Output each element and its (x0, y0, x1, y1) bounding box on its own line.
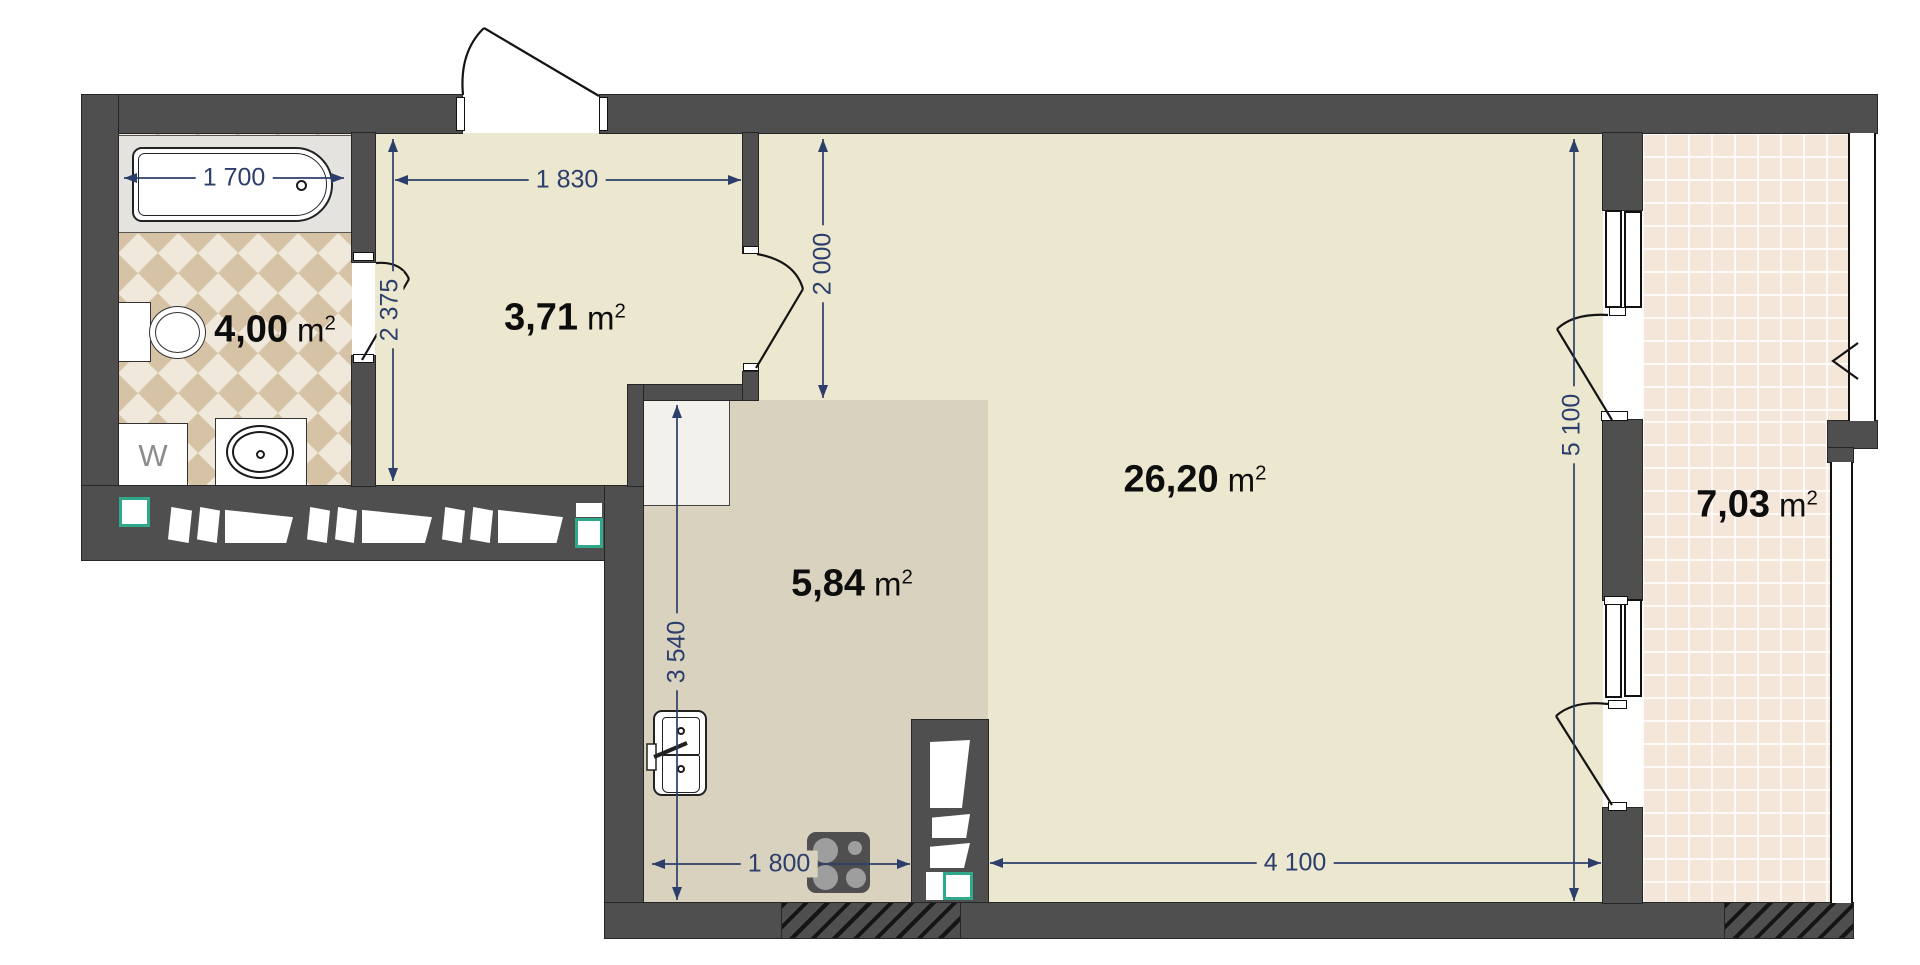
room-area-unit: m2 (1228, 462, 1267, 499)
vent-slat-icon (930, 843, 970, 868)
floor-plan: W (0, 0, 1920, 965)
vent-slat-icon (168, 507, 192, 543)
bathroom-door-jamb (353, 354, 374, 363)
entrance-door-jamb (599, 97, 608, 131)
balcony-door-jamb (1608, 700, 1627, 709)
washing-machine-label: W (119, 424, 187, 487)
toilet-bowl (149, 306, 206, 359)
dimension-label-living-width: 4 100 (1257, 850, 1334, 877)
wall-balcony-bracket-lower (1828, 448, 1853, 462)
dimension-label-bathtub: 1 700 (196, 165, 273, 192)
vent-white-box (576, 503, 602, 517)
vent-slat-icon (197, 507, 220, 543)
vent-slat-icon (442, 507, 465, 543)
vent-marker-icon (943, 872, 973, 900)
dimension-label-living-depth: 5 100 (1559, 387, 1586, 464)
wall-hallway-kitchen (628, 385, 758, 400)
wall-hallway-right-upper (743, 133, 758, 253)
room-area-label-kitchen: 5,84m2 (791, 563, 913, 606)
room-area-label-living: 26,20m2 (1124, 459, 1267, 502)
vent-slat-icon (307, 507, 330, 543)
wall-bathroom-right-upper (352, 133, 375, 262)
kitchen-sink-drain-top-icon (677, 727, 685, 735)
kitchen-sink (653, 710, 707, 796)
entrance-door-arc (462, 28, 484, 95)
vent-marker-icon (119, 497, 150, 527)
wall-hallway-right-lower (743, 372, 758, 400)
entrance-door-leaf (484, 28, 599, 96)
room-area-value: 5,84 (791, 563, 865, 605)
dimension-label-hallway-width: 1 830 (529, 167, 606, 194)
vent-white-box (926, 872, 943, 900)
stove-burner-icon (846, 868, 866, 888)
window-pane (1624, 211, 1642, 308)
bathroom-sink-drain-icon (256, 450, 265, 459)
hallway-floor-lower (375, 400, 628, 486)
bathroom-sink (215, 418, 307, 488)
toilet-bowl-inner (155, 312, 200, 353)
wall-pier-top (1603, 133, 1642, 210)
kitchen-sink-basin-bottom (662, 755, 700, 793)
wall-balcony-bracket (1828, 421, 1877, 448)
room-area-unit: m2 (874, 566, 913, 603)
wall-kitchen-left (605, 486, 643, 938)
entrance-door-jamb (456, 97, 465, 131)
fridge (643, 400, 730, 506)
room-area-label-bathroom: 4,00m2 (214, 309, 336, 352)
wall-pier-bottom (1603, 808, 1642, 903)
dimension-label-living-entry: 2 000 (810, 226, 837, 303)
balcony-door-jamb (1609, 307, 1626, 316)
room-area-label-hallway: 3,71m2 (504, 297, 626, 340)
vent-slat-icon (335, 507, 357, 543)
window-pane (1624, 599, 1642, 697)
room-area-value: 3,71 (504, 297, 578, 339)
room-area-value: 7,03 (1696, 484, 1770, 526)
wall-kitchen-left-upper (628, 385, 643, 486)
room-area-unit: m2 (587, 300, 626, 337)
balcony-door-jamb (1608, 802, 1627, 811)
wall-pier-middle (1603, 420, 1642, 600)
bathroom-door-jamb (353, 252, 374, 261)
room-area-value: 26,20 (1124, 459, 1219, 501)
toilet-tank (117, 302, 151, 362)
room-area-value: 4,00 (214, 309, 288, 351)
hallway-door-jamb (743, 363, 759, 371)
washing-machine: W (118, 423, 188, 488)
wall-bathroom-right-lower (352, 356, 375, 486)
window-pane (1605, 210, 1622, 308)
vent-slat-icon (932, 814, 970, 838)
dimension-label-hallway-depth: 2 375 (377, 272, 404, 349)
dimension-label-kitchen-width: 1 800 (741, 851, 818, 878)
balcony-floor-upper (1642, 133, 1848, 421)
kitchen-sink-drain-bottom-icon (677, 765, 685, 773)
room-area-unit: m2 (1779, 487, 1818, 524)
room-area-unit: m2 (297, 312, 336, 349)
kitchen-sink-basin-top (662, 717, 700, 755)
wall-bottom-hatch-balcony (1725, 903, 1853, 938)
wall-top-right (600, 95, 1877, 133)
window-sill-tab (1604, 596, 1628, 605)
window-pane (1605, 600, 1622, 698)
vent-slat-icon (470, 507, 493, 543)
vent-marker-icon (575, 518, 603, 548)
stove-burner-icon (848, 841, 862, 855)
wall-bottom-hatch-kitchen (782, 903, 960, 938)
room-area-label-balcony: 7,03m2 (1696, 484, 1818, 527)
balcony-glazing-upper (1848, 133, 1876, 421)
dimension-label-kitchen-depth: 3 540 (664, 614, 691, 691)
hallway-door-jamb (743, 246, 759, 254)
wall-top-left (82, 95, 462, 133)
balcony-glazing-lower (1830, 462, 1853, 903)
balcony-door-jamb (1601, 411, 1628, 421)
bathtub-drain-icon (296, 180, 307, 191)
